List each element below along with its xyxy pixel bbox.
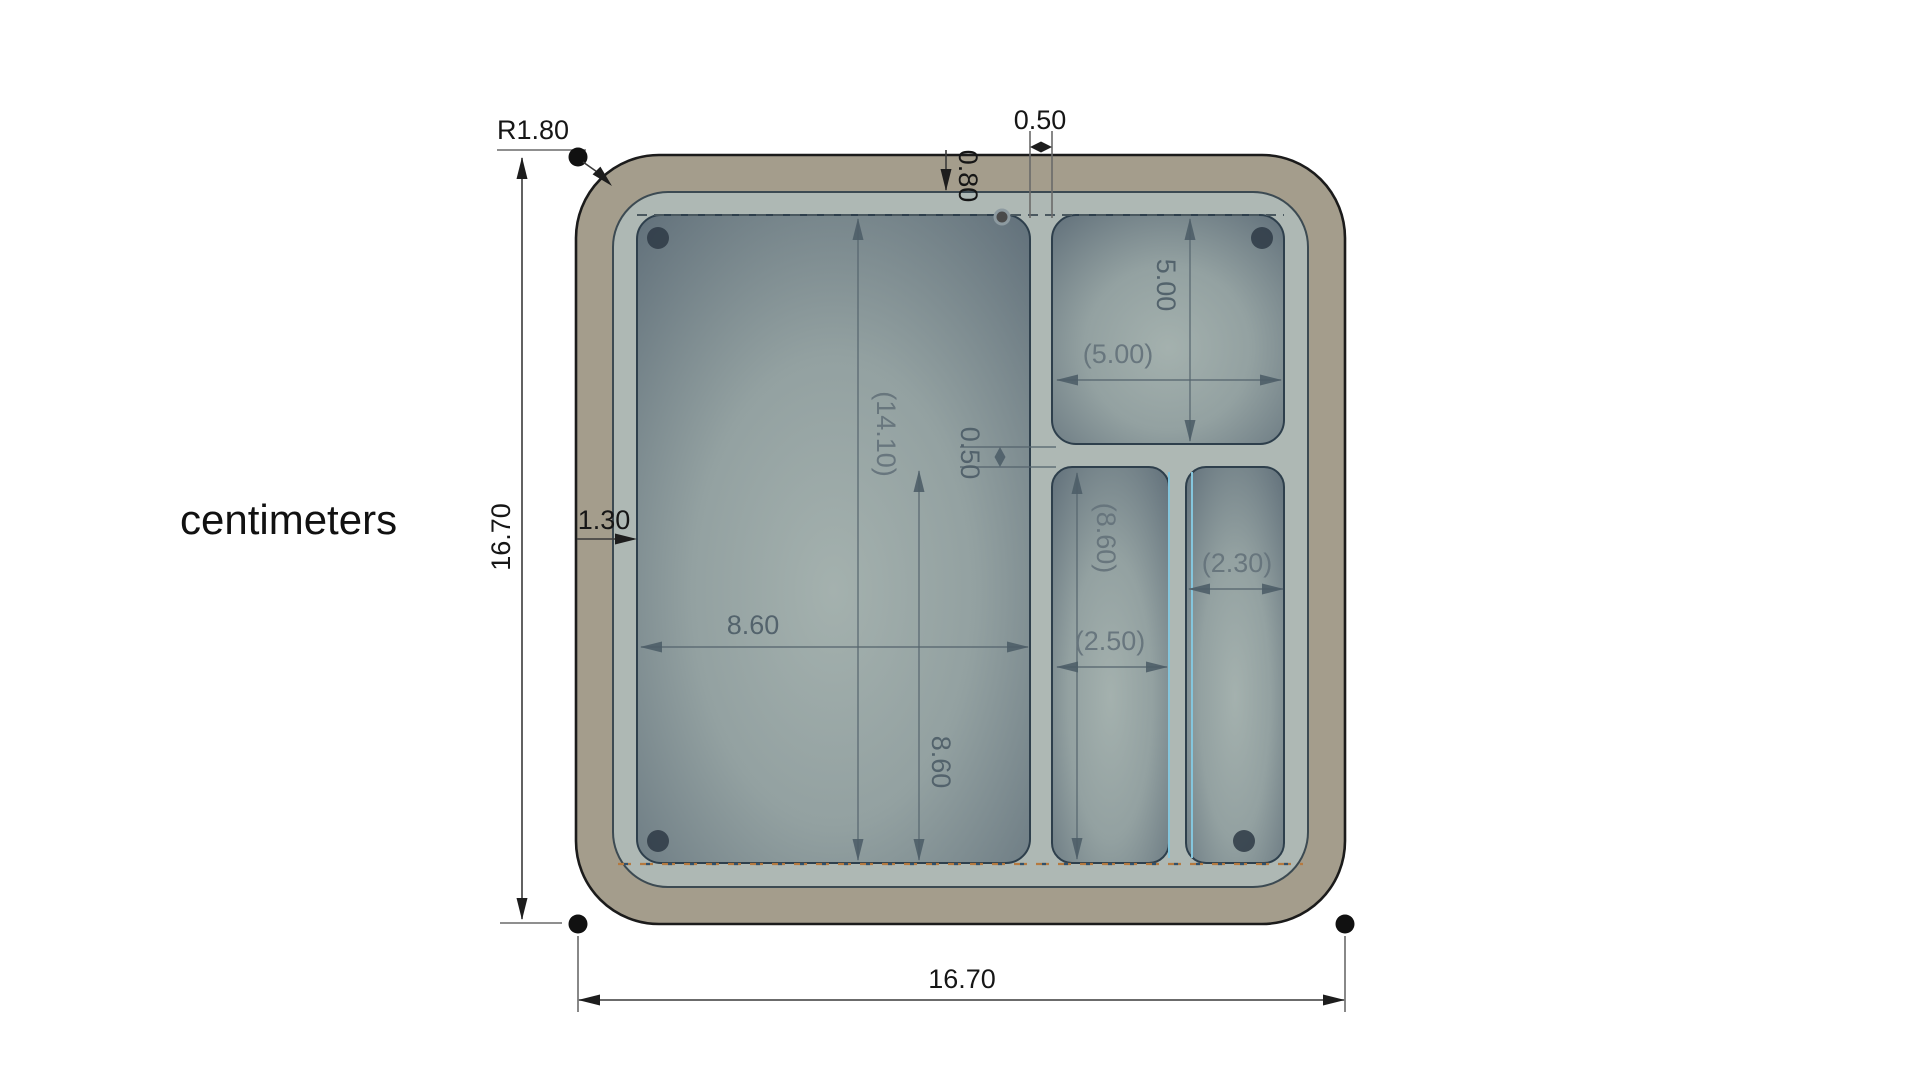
dim-label-top-right-width-ref[interactable]: (5.00) bbox=[1083, 339, 1154, 369]
dim-label-main-width[interactable]: 8.60 bbox=[727, 610, 780, 640]
pocket-bottom-right[interactable] bbox=[1186, 467, 1284, 863]
hole-main-top-left[interactable] bbox=[647, 227, 669, 249]
anchor-point-icon bbox=[569, 915, 588, 934]
units-caption: centimeters bbox=[180, 496, 397, 544]
hole-bottom-right-pocket[interactable] bbox=[1233, 830, 1255, 852]
dim-label-outer-height[interactable]: 16.70 bbox=[486, 503, 516, 571]
dim-label-corner-radius[interactable]: R1.80 bbox=[497, 115, 569, 145]
dim-label-top-right-height[interactable]: 5.00 bbox=[1151, 259, 1181, 312]
arrowhead-icon bbox=[578, 995, 600, 1006]
dim-outer-height[interactable]: 16.70 bbox=[486, 157, 562, 923]
arrowhead-icon bbox=[1323, 995, 1345, 1006]
dim-label-mid-divider[interactable]: 0.50 bbox=[955, 427, 985, 480]
sketch-vertex-marker[interactable] bbox=[995, 210, 1009, 224]
arrowhead-icon bbox=[517, 157, 528, 179]
dim-label-left-wall[interactable]: 1.30 bbox=[578, 505, 631, 535]
dim-label-main-ref[interactable]: (14.10) bbox=[871, 391, 901, 477]
dim-corner-radius[interactable]: R1.80 bbox=[497, 115, 612, 186]
dim-label-bottom-mid-ref[interactable]: (8.60) bbox=[1091, 503, 1121, 574]
arrowhead-icon bbox=[1030, 142, 1041, 153]
anchor-point-icon bbox=[1336, 915, 1355, 934]
dim-label-outer-width[interactable]: 16.70 bbox=[928, 964, 996, 994]
dim-label-bottom-mid-width[interactable]: (2.50) bbox=[1075, 626, 1146, 656]
hole-main-bottom-left[interactable] bbox=[647, 830, 669, 852]
pocket-top-right[interactable] bbox=[1052, 215, 1284, 444]
cad-drawing-canvas: centimeters bbox=[0, 0, 1920, 1080]
dim-outer-width[interactable]: 16.70 bbox=[569, 915, 1355, 1013]
dim-label-main-height[interactable]: 8.60 bbox=[926, 736, 956, 789]
arrowhead-icon bbox=[1041, 142, 1052, 153]
pocket-main[interactable] bbox=[637, 215, 1030, 863]
arrowhead-icon bbox=[517, 898, 528, 920]
dim-label-top-divider[interactable]: 0.50 bbox=[1014, 105, 1067, 135]
dim-left-wall[interactable]: 1.30 bbox=[577, 505, 637, 545]
dim-label-top-wall[interactable]: 0.80 bbox=[953, 150, 983, 203]
hole-top-right-pocket[interactable] bbox=[1251, 227, 1273, 249]
dim-label-bottom-right-width[interactable]: (2.30) bbox=[1202, 548, 1273, 578]
